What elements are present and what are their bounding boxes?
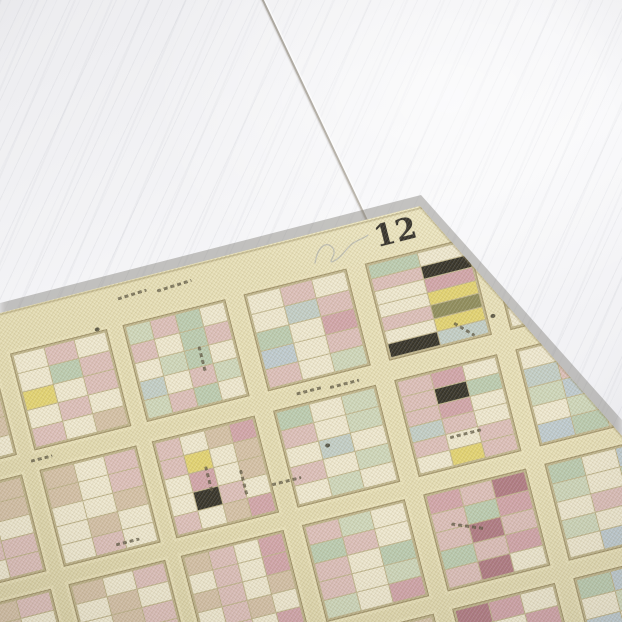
- map-block: [544, 437, 622, 561]
- map-parcel: [542, 292, 579, 318]
- map-parcel: [562, 228, 599, 254]
- map-block: [486, 206, 617, 330]
- map-parcel: [557, 210, 594, 236]
- map-block: [423, 469, 550, 592]
- map-parcel: [400, 617, 436, 622]
- map-block: [122, 299, 249, 422]
- map-block: [0, 589, 75, 622]
- map-block: [394, 354, 521, 477]
- map-block: [181, 530, 308, 622]
- map-parcel: [596, 363, 622, 389]
- map-parcel: [567, 247, 604, 273]
- map-parcel: [576, 283, 613, 309]
- street-label-marks: [157, 279, 192, 293]
- ink-stain-dot: [490, 313, 496, 318]
- street-label-marks: [296, 386, 322, 395]
- map-parcel: [456, 603, 492, 622]
- map-parcel: [571, 265, 608, 291]
- map-parcel: [0, 435, 13, 461]
- map-block: [68, 560, 189, 622]
- map-block: [302, 499, 429, 622]
- map-block: [39, 445, 160, 566]
- map-block: [152, 415, 279, 538]
- map-parcel: [523, 218, 560, 244]
- map-block: [573, 551, 622, 622]
- map-block: [10, 329, 131, 450]
- map-content: 12: [0, 144, 622, 622]
- photo-scene: 12: [0, 0, 622, 622]
- map-block: [244, 268, 371, 391]
- street-label-marks: [31, 454, 53, 462]
- map-block: [452, 583, 576, 622]
- map-parcel: [490, 227, 527, 253]
- street-label-marks: [330, 379, 360, 389]
- map-block: [273, 385, 400, 508]
- map-block: [515, 322, 622, 446]
- map-parcel: [499, 264, 536, 290]
- map-parcel: [537, 274, 574, 300]
- map-parcel: [592, 345, 622, 371]
- map-parcel: [528, 237, 565, 263]
- map-parcel: [494, 245, 531, 271]
- map-block: [0, 474, 46, 589]
- street-label-marks: [117, 289, 147, 301]
- map-sheet: 12: [0, 0, 622, 622]
- map-parcel: [533, 255, 570, 281]
- map-parcel: [587, 326, 622, 352]
